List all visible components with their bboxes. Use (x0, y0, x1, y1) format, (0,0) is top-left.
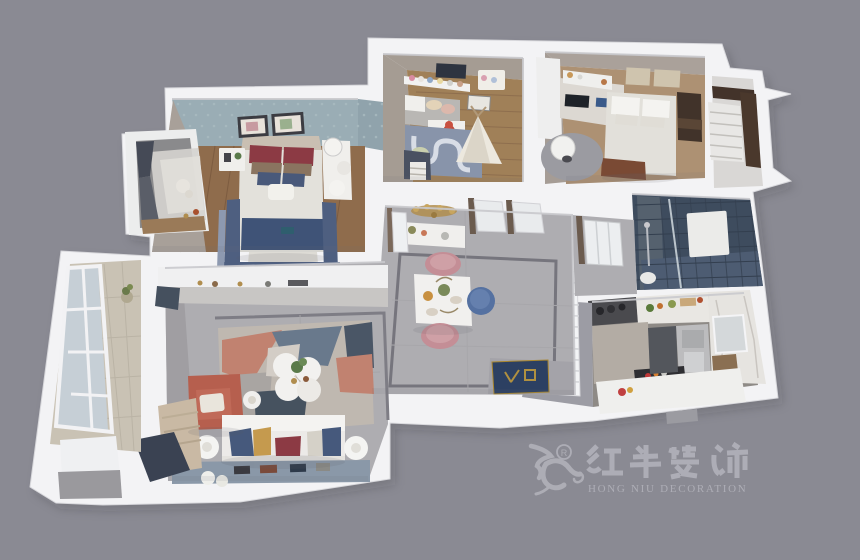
svg-text:R: R (561, 448, 568, 458)
svg-text:HONG NIU DECORATION: HONG NIU DECORATION (588, 483, 747, 495)
